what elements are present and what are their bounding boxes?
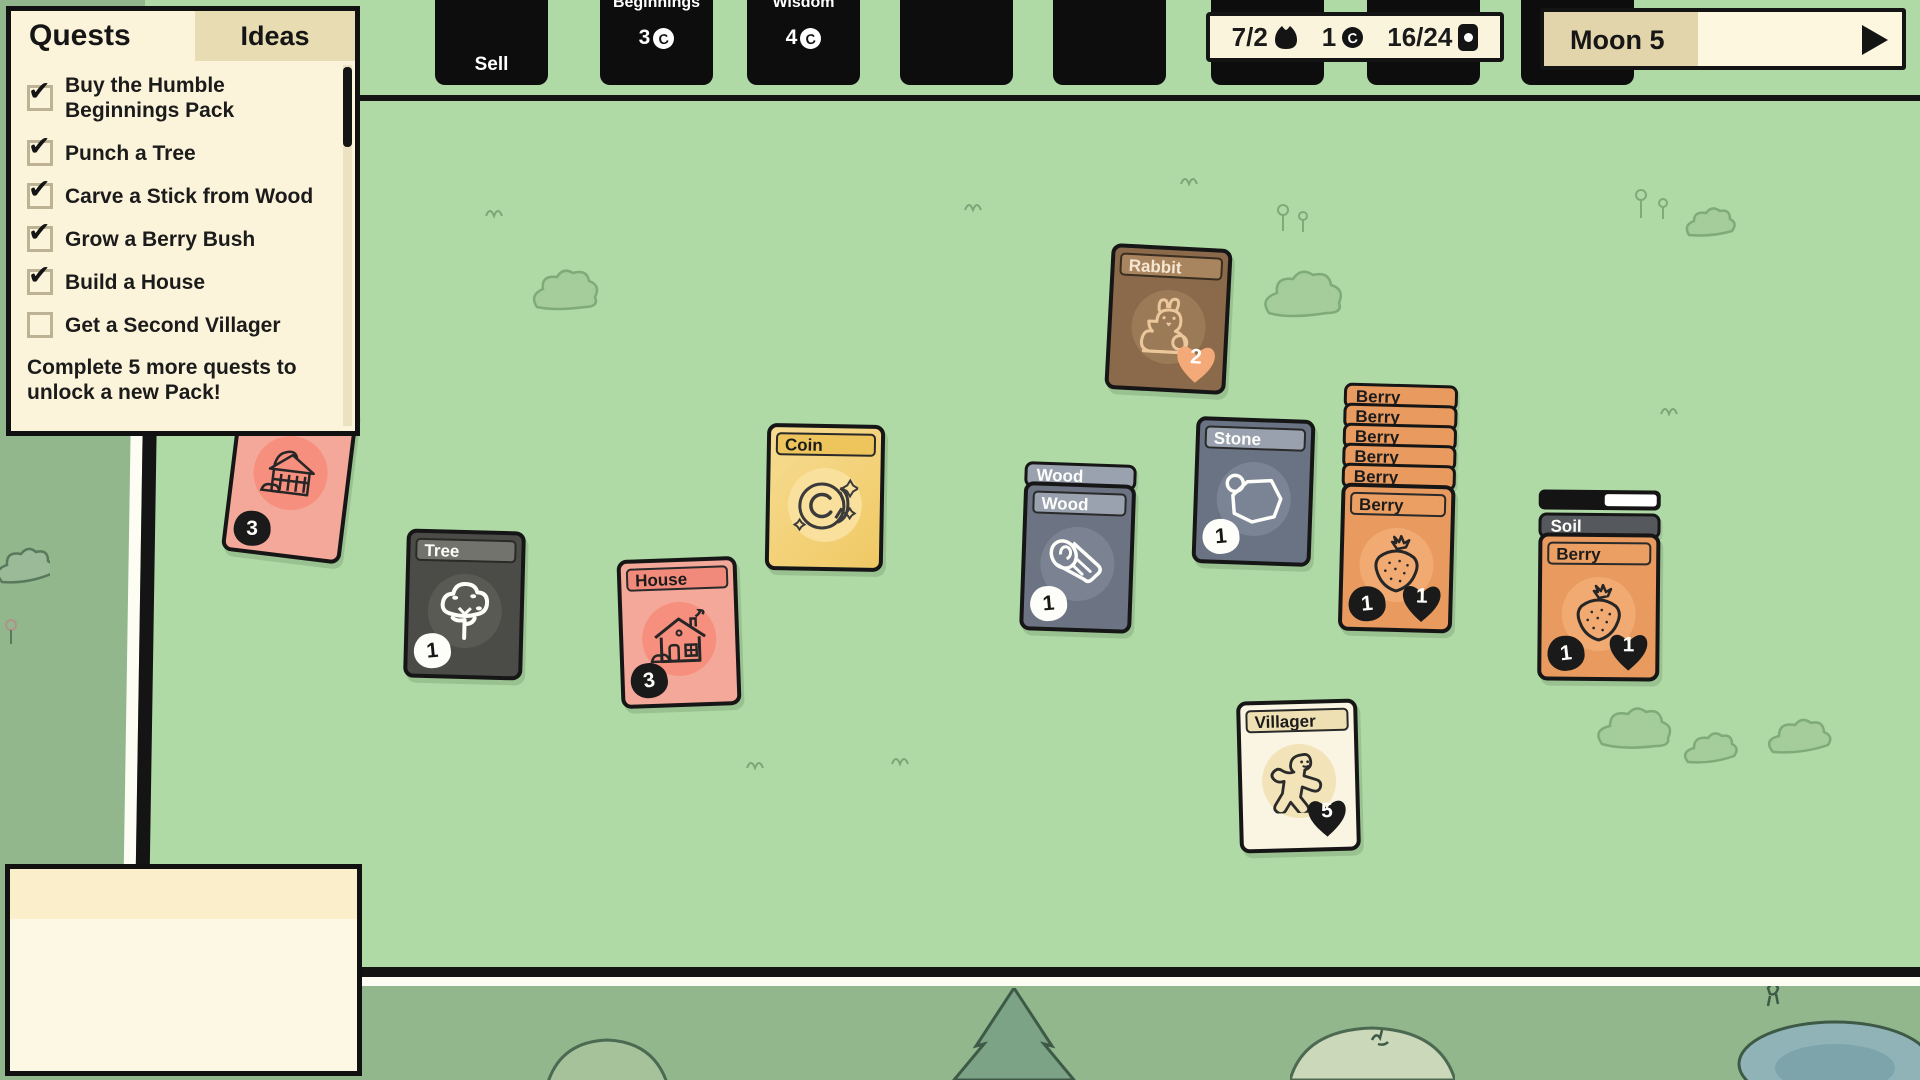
- pond-doodle: [1735, 1018, 1920, 1080]
- card-title: Berry: [1547, 542, 1651, 566]
- checkmark-icon: ✔: [28, 262, 51, 289]
- pack-cost-value: 4: [786, 26, 798, 50]
- quest-item: ✔ Build a House: [27, 269, 325, 295]
- tree-icon: [434, 579, 496, 643]
- quest-item: ✔ Buy the Humble Beginnings Pack: [27, 73, 325, 123]
- food-stat: 7/2: [1232, 22, 1298, 53]
- soil-stack[interactable]: Soil Berry 1 1: [1537, 489, 1661, 681]
- card-title: Villager: [1245, 708, 1349, 734]
- berry-card[interactable]: Berry 1 1: [1537, 532, 1660, 681]
- pack-name: Wisdom: [747, 0, 860, 12]
- grow-timer-fill: [1605, 494, 1657, 506]
- bush-doodle: [529, 267, 605, 315]
- rabbit-card[interactable]: Rabbit 2: [1104, 243, 1232, 395]
- bush-doodle: [1592, 688, 1752, 772]
- squiggle-doodle: [745, 756, 769, 772]
- moon-label: Moon 5: [1570, 25, 1665, 56]
- checkbox-checked: ✔: [27, 140, 53, 166]
- coin-icon: C: [799, 26, 823, 50]
- checkbox-checked: ✔: [27, 226, 53, 252]
- checkmark-icon: ✔: [28, 176, 51, 203]
- card-title: House: [626, 565, 729, 592]
- tree-card[interactable]: Tree 1: [403, 528, 526, 680]
- coin-icon: [791, 473, 858, 536]
- checkmark-icon: ✔: [28, 78, 51, 105]
- squiggle-doodle: [1179, 172, 1203, 188]
- health-badge: 1: [1398, 581, 1445, 625]
- coin-icon: C: [1341, 25, 1365, 49]
- count-badge: 3: [234, 511, 271, 546]
- checkbox-checked: ✔: [27, 269, 53, 295]
- stone-card[interactable]: Stone 1: [1191, 416, 1315, 567]
- board-top-edge: [150, 95, 1920, 101]
- stone-icon: [1221, 469, 1285, 529]
- pack-card-empty[interactable]: [1053, 0, 1166, 85]
- sell-card[interactable]: Sell: [435, 0, 548, 85]
- moon-timer-bar: Moon 5: [1540, 8, 1906, 70]
- quest-item: Get a Second Villager: [27, 312, 325, 338]
- health-badge: 1: [1605, 630, 1651, 673]
- flower-doodle: [1629, 183, 1749, 245]
- sell-card-label: Sell: [435, 54, 548, 76]
- card-title: Berry: [1350, 492, 1447, 518]
- wood-stack[interactable]: Wood Wood 1: [1019, 461, 1137, 634]
- quest-item: ✔ Carve a Stick from Wood: [27, 183, 325, 209]
- scrollbar-track[interactable]: [343, 65, 352, 426]
- fast-forward-button[interactable]: [1862, 25, 1888, 55]
- quest-list: ✔ Buy the Humble Beginnings Pack ✔ Punch…: [27, 73, 325, 405]
- pack-name: Beginnings: [600, 0, 713, 12]
- board-bottom-edge-highlight: [132, 977, 1920, 986]
- card-title: Coin: [776, 432, 876, 457]
- bush-doodle: [0, 540, 50, 590]
- health-badge: 5: [1304, 796, 1351, 840]
- hill-doodle: [545, 1034, 670, 1080]
- house-card[interactable]: House 3: [616, 556, 741, 709]
- bird-doodle: [1368, 1026, 1394, 1048]
- quest-label: Build a House: [65, 270, 205, 295]
- checkmark-icon: ✔: [28, 133, 51, 160]
- pack-cost: 4 C: [747, 26, 860, 50]
- wood-card[interactable]: Wood 1: [1019, 481, 1136, 634]
- quest-label: Buy the Humble Beginnings Pack: [65, 73, 315, 123]
- log-icon: [1045, 534, 1109, 594]
- squiggle-doodle: [963, 198, 987, 214]
- quest-label: Grow a Berry Bush: [65, 227, 255, 252]
- health-badge: 2: [1172, 341, 1220, 386]
- flower-doodle: [1273, 202, 1315, 242]
- coin-icon: C: [652, 26, 676, 50]
- board-bottom-edge: [132, 967, 1920, 977]
- pack-card-beginnings[interactable]: Beginnings 3 C: [600, 0, 713, 85]
- info-panel: [5, 864, 362, 1076]
- food-count: 7/2: [1232, 22, 1268, 53]
- tab-ideas[interactable]: Ideas: [195, 11, 355, 61]
- flower-doodle: [2, 618, 22, 648]
- card-title: Stone: [1204, 425, 1306, 452]
- pack-card-wisdom[interactable]: Wisdom 4 C: [747, 0, 860, 85]
- bush-doodle: [1259, 265, 1353, 323]
- food-icon: [1274, 24, 1298, 50]
- tab-quests[interactable]: Quests: [29, 19, 131, 53]
- coin-card[interactable]: Coin: [765, 423, 886, 572]
- quest-label: Get a Second Villager: [65, 313, 281, 338]
- berry-card[interactable]: Berry 1 1: [1338, 483, 1456, 634]
- quest-footer-text: Complete 5 more quests to unlock a new P…: [27, 355, 325, 405]
- card-icon: [1458, 24, 1478, 51]
- squiggle-doodle: [484, 204, 508, 220]
- quest-label: Carve a Stick from Wood: [65, 184, 313, 209]
- checkmark-icon: ✔: [28, 219, 51, 246]
- card-count: 16/24: [1387, 22, 1452, 53]
- grow-timer-bar: [1539, 489, 1661, 510]
- info-panel-header: [10, 869, 357, 919]
- quest-panel: Quests Ideas ✔ Buy the Humble Beginnings…: [6, 6, 360, 436]
- game-screen: Sell Beginnings 3 C Wisdom 4 C 7/2 1 C 1…: [0, 0, 1920, 1080]
- house-icon: [646, 608, 712, 670]
- status-bar: 7/2 1 C 16/24: [1206, 12, 1504, 62]
- squiggle-doodle: [890, 752, 914, 768]
- card-title: Tree: [415, 538, 517, 564]
- checkbox-unchecked: [27, 312, 53, 338]
- card-limit-stat: 16/24: [1387, 22, 1478, 53]
- shed-icon: [257, 443, 325, 502]
- villager-card[interactable]: Villager 5: [1236, 698, 1361, 853]
- quest-label: Punch a Tree: [65, 141, 196, 166]
- coin-stat: 1 C: [1322, 22, 1363, 53]
- berry-stack[interactable]: Berry Berry Berry Berry Berry Berry 1 1: [1338, 383, 1458, 634]
- pack-cost-value: 3: [639, 26, 651, 50]
- squiggle-doodle: [1659, 402, 1683, 418]
- pack-card-empty[interactable]: [900, 0, 1013, 85]
- checkbox-checked: ✔: [27, 183, 53, 209]
- card-title: Wood: [1032, 490, 1127, 516]
- pack-cost: 3 C: [600, 26, 713, 50]
- scrollbar-thumb[interactable]: [343, 67, 352, 147]
- card-title: Rabbit: [1119, 252, 1223, 280]
- pine-tree-doodle: [948, 988, 1080, 1080]
- coin-count: 1: [1322, 22, 1336, 53]
- bush-doodle: [1763, 710, 1851, 762]
- quest-item: ✔ Grow a Berry Bush: [27, 226, 325, 252]
- checkbox-checked: ✔: [27, 85, 53, 111]
- quest-item: ✔ Punch a Tree: [27, 140, 325, 166]
